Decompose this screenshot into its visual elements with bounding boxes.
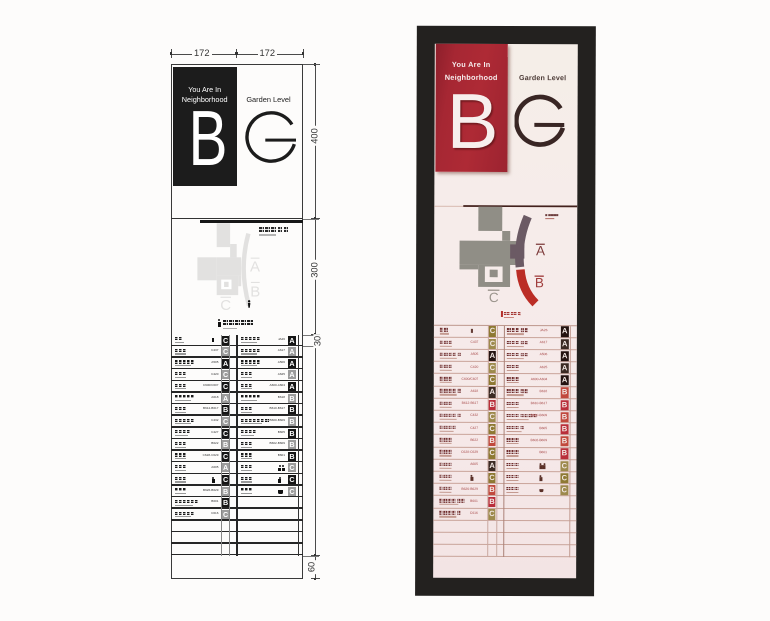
svg-text:C: C bbox=[489, 290, 499, 305]
svg-text:A: A bbox=[250, 258, 260, 275]
svg-text:C: C bbox=[220, 297, 231, 314]
svg-text:A: A bbox=[536, 243, 545, 258]
svg-text:B: B bbox=[535, 275, 544, 290]
svg-text:B: B bbox=[250, 283, 260, 300]
